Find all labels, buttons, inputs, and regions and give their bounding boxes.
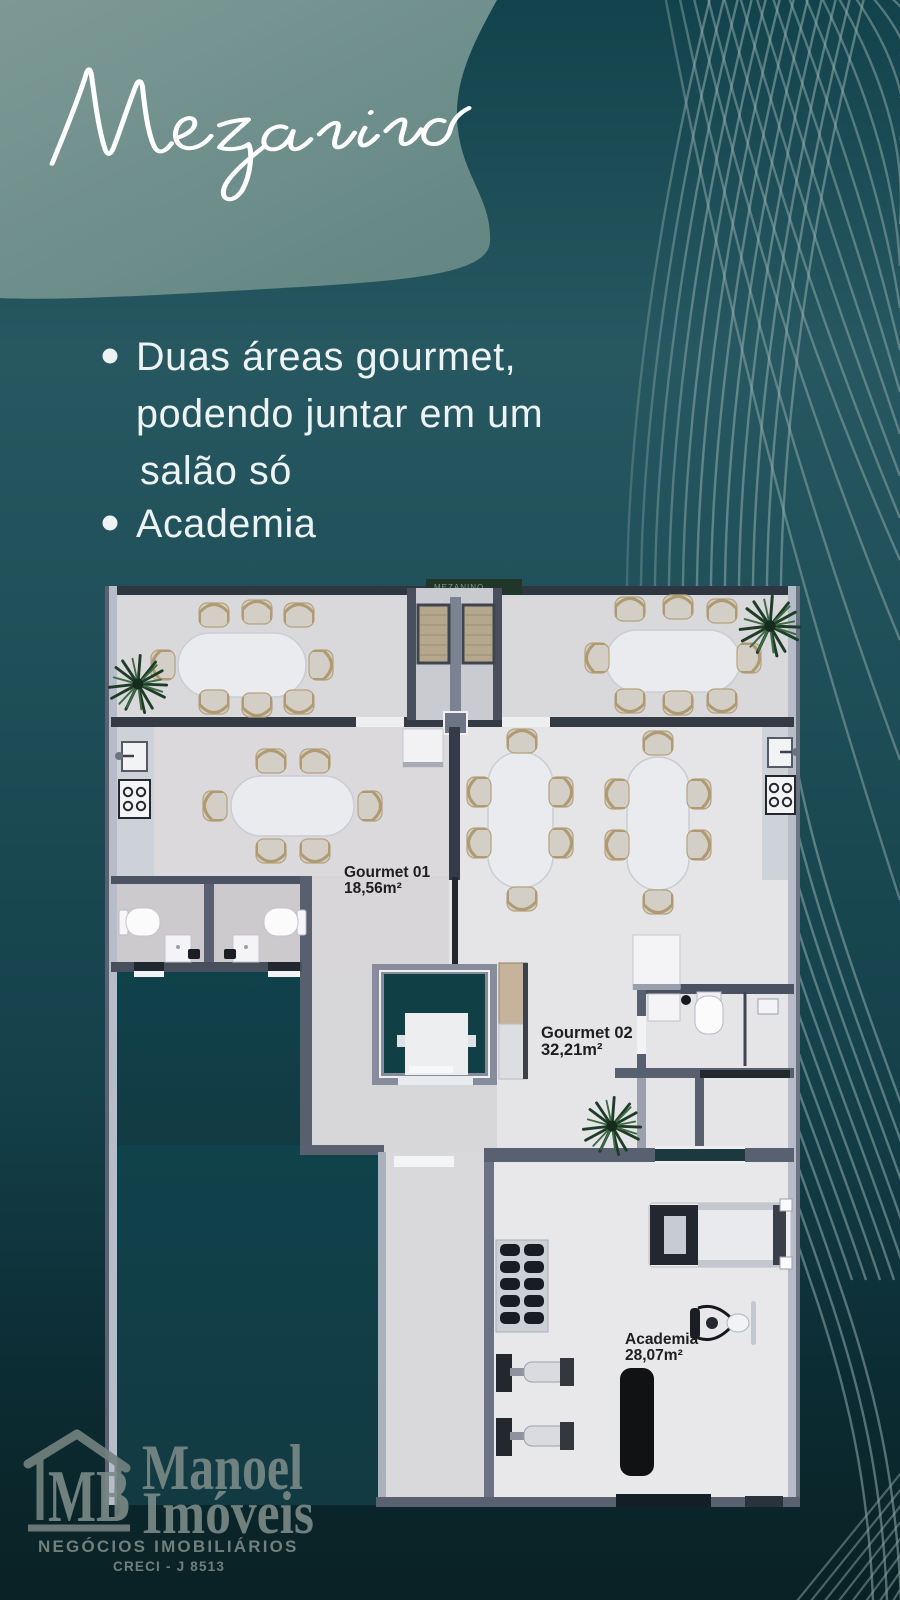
svg-text:podendo juntar em um: podendo juntar em um bbox=[136, 392, 543, 436]
svg-text:18,56m²: 18,56m² bbox=[344, 880, 402, 897]
svg-text:salão só: salão só bbox=[140, 449, 292, 493]
svg-text:Gourmet 01: Gourmet 01 bbox=[344, 864, 431, 881]
svg-text:28,07m²: 28,07m² bbox=[625, 1347, 683, 1364]
svg-text:Duas áreas gourmet,: Duas áreas gourmet, bbox=[136, 335, 516, 379]
svg-text:CRECI - J 8513: CRECI - J 8513 bbox=[113, 1559, 225, 1574]
svg-text:Academia: Academia bbox=[136, 502, 316, 546]
svg-text:32,21m²: 32,21m² bbox=[541, 1041, 603, 1059]
svg-text:MB: MB bbox=[48, 1456, 130, 1538]
svg-text:NEGÓCIOS IMOBILIÁRIOS: NEGÓCIOS IMOBILIÁRIOS bbox=[38, 1537, 299, 1556]
svg-text:Gourmet 02: Gourmet 02 bbox=[541, 1024, 633, 1042]
svg-text:Academia: Academia bbox=[625, 1331, 699, 1348]
